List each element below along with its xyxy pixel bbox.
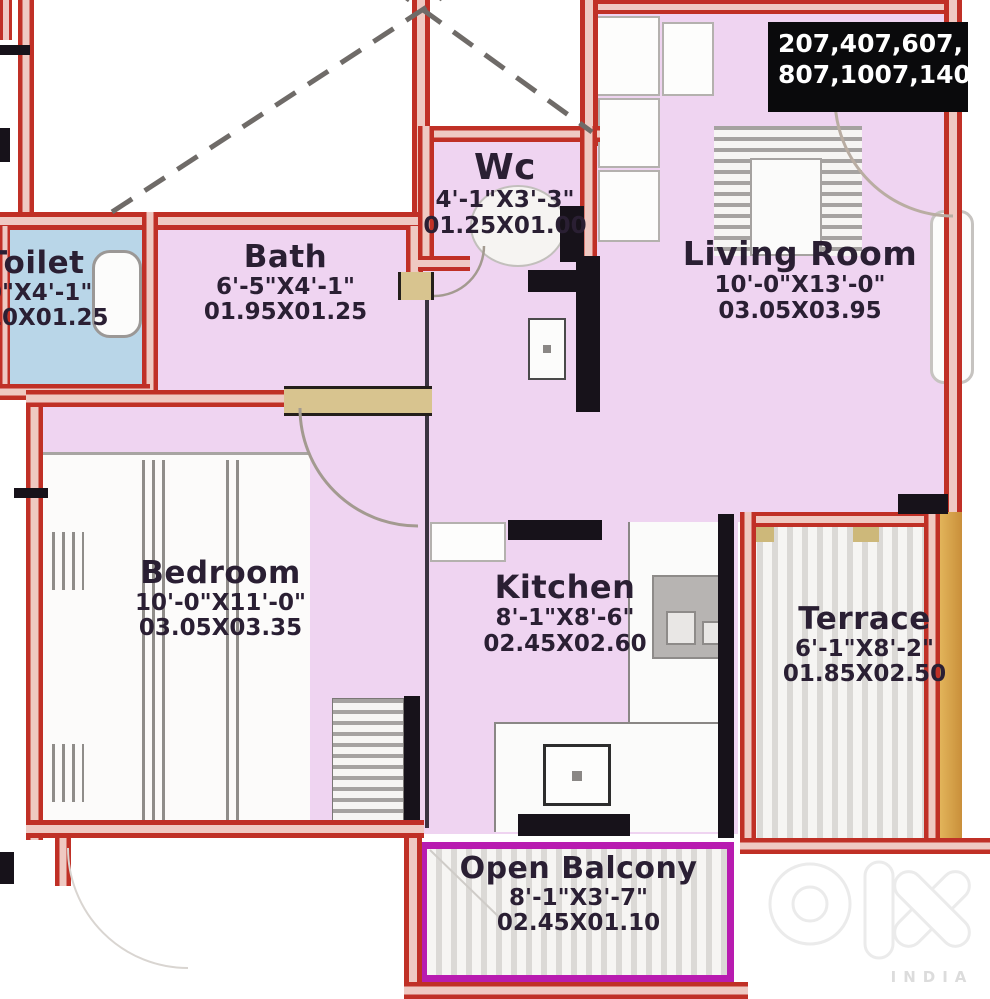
wardrobe-side-wall [404, 696, 420, 832]
room-label-living: Living Room 10'-0"X13'-0" 03.05X03.95 [640, 236, 960, 324]
room-label-bedroom: Bedroom 10'-0"X11'-0" 03.05X03.35 [88, 556, 353, 642]
living-cabinet [598, 98, 660, 168]
living-cabinet [596, 16, 660, 96]
olx-watermark: INDIA [765, 854, 980, 994]
wall-segment [740, 512, 942, 527]
room-dim-ft: 8'-1"X3'-7" [436, 886, 721, 912]
door-lintel-wc [398, 272, 434, 300]
wash-basin [528, 318, 566, 380]
wall-segment [26, 390, 304, 407]
olx-l-icon [865, 862, 893, 958]
wall-segment [740, 838, 990, 854]
room-name: Bath [168, 240, 403, 275]
room-dim-m: 01.85X02.50 [762, 662, 967, 688]
wall-segment [404, 838, 422, 999]
door-arc-entry [68, 848, 188, 968]
room-dim-ft: 6'-1"X8'-2" [762, 637, 967, 663]
room-dim-ft: 8'-1"X8'-6" [440, 606, 690, 632]
wall-black [0, 128, 10, 162]
partition-line [425, 298, 429, 828]
unit-numbers-box: 207,407,607, 807,1007,1407 [768, 22, 968, 112]
room-dim-ft: 10'-0"X13'-0" [640, 273, 960, 299]
room-name: Toilet [0, 246, 166, 281]
wall-black [898, 494, 948, 514]
wall-black [0, 852, 14, 884]
basin-drain [543, 345, 551, 353]
room-dim-m: 03.05X03.35 [88, 616, 353, 642]
room-label-wc: Wc 4'-1"X3'-3" 01.25X01.00 [420, 148, 590, 240]
room-dim-m: 02.45X01.10 [436, 911, 721, 937]
room-dim-m: 01.95X01.25 [168, 300, 403, 326]
wall-segment [418, 256, 470, 271]
wall-segment [0, 212, 432, 230]
room-name: Kitchen [440, 570, 690, 606]
room-dim-ft: 10'-0"X11'-0" [88, 591, 353, 617]
room-name: Wc [420, 148, 590, 188]
wall-segment [418, 126, 600, 142]
olx-country-label: INDIA [891, 968, 974, 986]
pillow [52, 744, 84, 802]
wall-black [576, 256, 600, 412]
wall-black [718, 514, 734, 838]
wall-segment [26, 392, 43, 840]
living-cabinet [662, 22, 714, 96]
wall-segment [26, 820, 424, 838]
room-label-kitchen: Kitchen 8'-1"X8'-6" 02.45X02.60 [440, 570, 690, 657]
wall-black [518, 814, 630, 836]
pillow [52, 532, 84, 590]
room-name: Open Balcony [436, 852, 721, 886]
room-label-balcony: Open Balcony 8'-1"X3'-7" 02.45X01.10 [436, 852, 721, 937]
sink-drain [572, 771, 582, 781]
floor-plan: Toilet 0"X4'-1" 10X01.25 Bath 6'-5"X4'-1… [0, 0, 990, 999]
wall-black [528, 270, 578, 292]
room-dim-m: 02.45X02.60 [440, 632, 690, 658]
room-label-bath: Bath 6'-5"X4'-1" 01.95X01.25 [168, 240, 403, 326]
room-name: Bedroom [88, 556, 353, 591]
room-dim-m: 03.05X03.95 [640, 299, 960, 325]
kitchen-shelf [430, 522, 506, 562]
wall-segment [18, 0, 34, 216]
window-tick [14, 488, 48, 498]
room-name: Living Room [640, 236, 960, 273]
room-dim-m: 10X01.25 [0, 306, 166, 332]
duct-dashed-line [112, 0, 462, 212]
room-dim-m: 01.25X01.00 [420, 214, 590, 240]
window-tick [0, 45, 30, 55]
wall-segment [740, 512, 756, 852]
room-label-toilet: Toilet 0"X4'-1" 10X01.25 [0, 246, 166, 332]
unit-numbers-line2: 807,1007,1407 [778, 60, 958, 91]
room-name: Terrace [762, 602, 967, 637]
unit-numbers-line1: 207,407,607, [778, 29, 958, 60]
door-lintel-bath [284, 386, 432, 416]
living-cabinet [598, 170, 660, 242]
wall-black [508, 520, 602, 540]
wall-segment [55, 838, 71, 886]
room-dim-ft: 0"X4'-1" [0, 281, 166, 307]
wall-segment [0, 0, 12, 40]
wall-segment [592, 0, 962, 14]
kitchen-sink [543, 744, 611, 806]
room-label-terrace: Terrace 6'-1"X8'-2" 01.85X02.50 [762, 602, 967, 688]
room-dim-ft: 4'-1"X3'-3" [420, 188, 590, 214]
olx-o-hole-icon [793, 887, 827, 921]
wall-segment [580, 0, 598, 146]
room-dim-ft: 6'-5"X4'-1" [168, 275, 403, 301]
wardrobe [332, 698, 404, 830]
wall-segment [404, 982, 748, 999]
